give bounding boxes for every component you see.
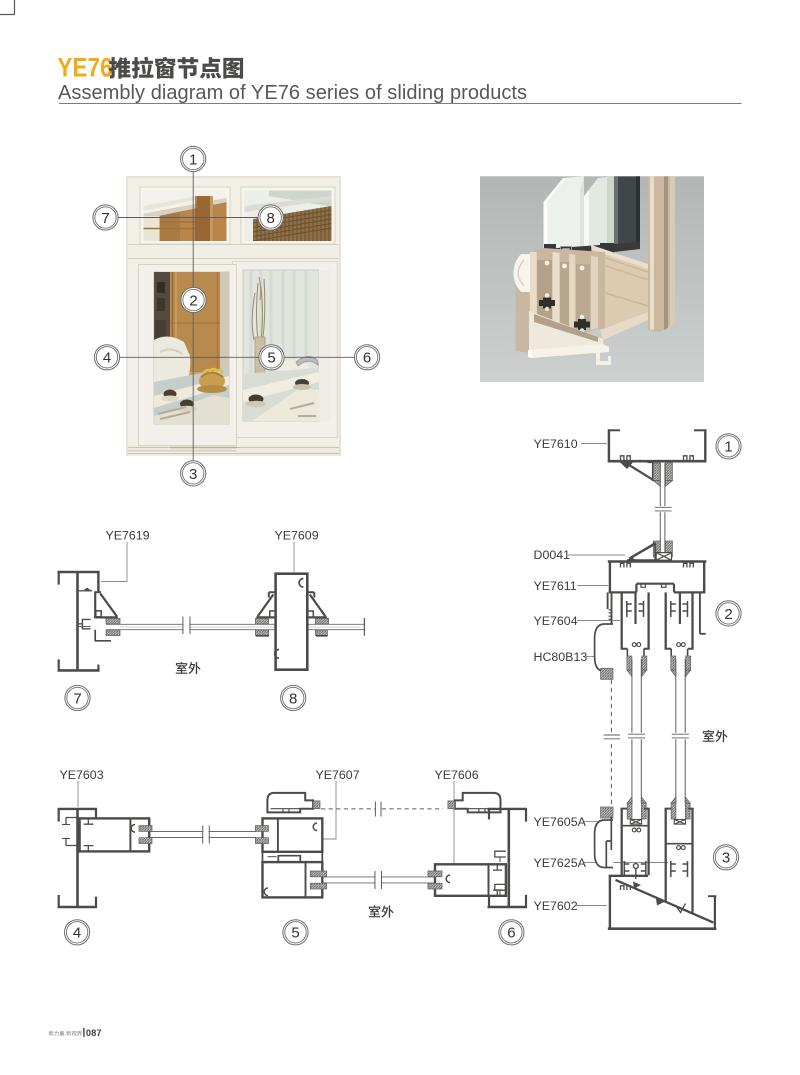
svg-text:YE7602: YE7602 [534,899,578,913]
svg-text:YE7605A: YE7605A [534,815,587,829]
svg-text:1: 1 [189,151,197,168]
svg-text:YE7610: YE7610 [534,437,578,451]
svg-text:8: 8 [267,210,275,227]
svg-text:5: 5 [267,350,275,367]
svg-text:HC80B13: HC80B13 [534,650,588,664]
svg-text:2: 2 [724,606,732,623]
svg-text:YE7609: YE7609 [275,529,319,543]
svg-text:7: 7 [73,690,81,707]
svg-text:4: 4 [73,925,81,942]
svg-text:YE7607: YE7607 [316,768,360,782]
svg-text:5: 5 [291,925,299,942]
svg-text:YE7619: YE7619 [106,529,150,543]
svg-text:087: 087 [86,1028,102,1038]
svg-text:2: 2 [189,292,197,309]
svg-text:6: 6 [363,350,371,367]
svg-text:4: 4 [103,350,111,367]
svg-text:YE7603: YE7603 [60,768,104,782]
svg-text:3: 3 [722,850,730,867]
svg-text:1: 1 [724,439,732,456]
svg-text:Assembly diagram of YE76 serie: Assembly diagram of YE76 series of slidi… [58,82,527,104]
svg-text:8: 8 [289,690,297,707]
svg-text:YE7606: YE7606 [435,768,479,782]
svg-text:YE76: YE76 [58,54,113,83]
svg-text:YE7611: YE7611 [534,579,577,593]
svg-text:7: 7 [101,210,109,227]
svg-text:YE7625A: YE7625A [534,856,587,870]
svg-text:YE7604: YE7604 [534,614,578,628]
svg-text:3: 3 [189,466,197,483]
svg-text:D0041: D0041 [534,548,571,562]
svg-text:6: 6 [507,925,515,942]
